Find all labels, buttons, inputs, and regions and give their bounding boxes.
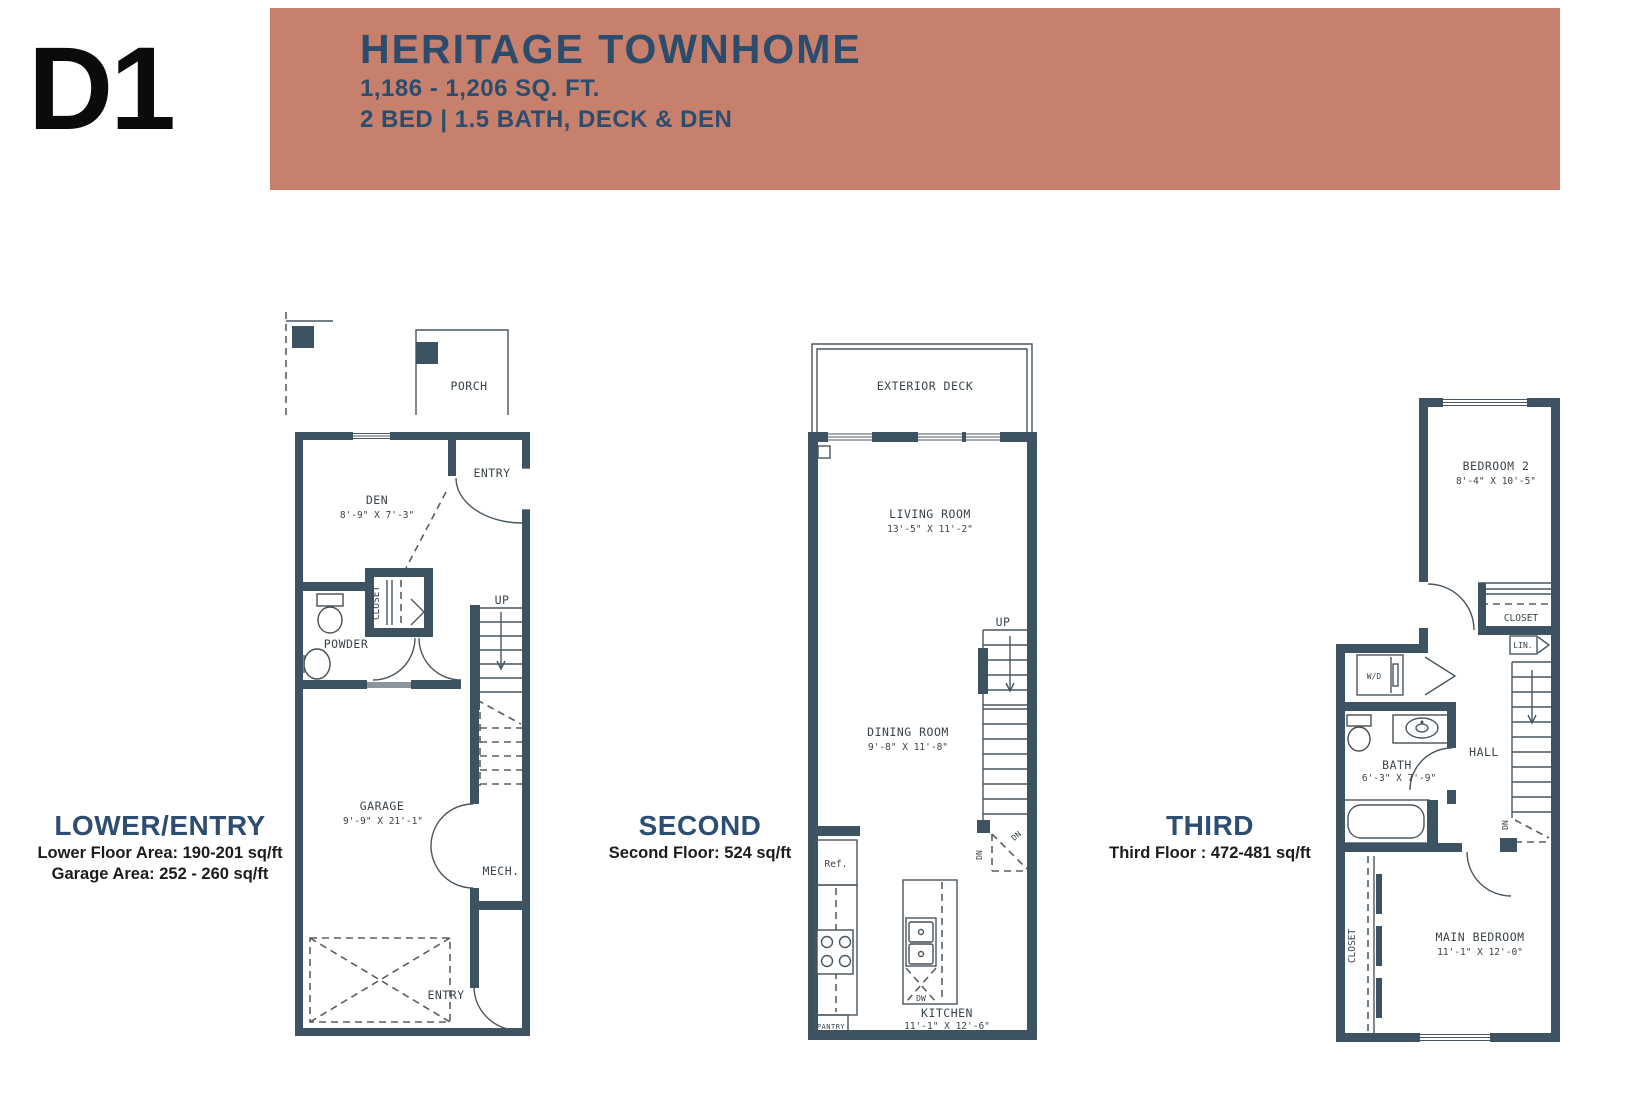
main-bedroom-dim: 11'-1" X 12'-0" xyxy=(1437,947,1523,958)
wall xyxy=(1427,800,1438,843)
stairs-up xyxy=(480,608,522,692)
lower-garage-area: Garage Area: 252 - 260 sq/ft xyxy=(15,865,305,884)
den-label: DEN xyxy=(366,493,388,507)
wall xyxy=(365,568,433,577)
column xyxy=(818,446,830,458)
stairs xyxy=(1512,662,1551,818)
door-arc xyxy=(456,478,522,523)
wall xyxy=(295,432,303,1036)
pantry-label: PANTRY xyxy=(817,1023,846,1031)
door-arc xyxy=(419,638,461,680)
dishwasher-label: DW xyxy=(916,994,926,1003)
toilet-icon xyxy=(1347,715,1371,726)
door-arc xyxy=(1428,584,1474,630)
plan-configuration: 2 BED | 1.5 BATH, DECK & DEN xyxy=(360,104,862,135)
floorplan-third: BEDROOM 2 8'-4" X 10'-5" CLOSET LIN. W/D xyxy=(1275,378,1567,1050)
den-dim: 8'-9" X 7'-3" xyxy=(340,510,414,521)
wall xyxy=(1478,626,1560,635)
door-arc xyxy=(431,846,473,888)
window xyxy=(1420,1033,1490,1042)
dining-room-dim: 9'-8" X 11'-8" xyxy=(868,742,948,753)
dn-label: DN xyxy=(1010,829,1023,842)
bath-label: BATH xyxy=(1382,758,1412,772)
stairs xyxy=(977,630,1027,833)
floorplan-second: EXTERIOR DECK LIVING ROOM 13'-5" X 11'-2… xyxy=(770,318,1040,1048)
garage-label: GARAGE xyxy=(360,799,405,813)
living-room-dim: 13'-5" X 11'-2" xyxy=(887,524,973,535)
plan-code: D1 xyxy=(28,30,173,148)
wall xyxy=(1336,843,1462,852)
wall xyxy=(1336,702,1455,711)
parking-stall-x xyxy=(310,938,450,1022)
wall-low xyxy=(367,682,411,688)
exterior-deck-label: EXTERIOR DECK xyxy=(877,379,974,393)
stairs-down-marker xyxy=(1515,820,1549,838)
main-bedroom-label: MAIN BEDROOM xyxy=(1435,930,1524,944)
door-arc xyxy=(431,804,473,846)
plan-title: HERITAGE TOWNHOME xyxy=(360,26,862,73)
wall xyxy=(1447,702,1456,748)
washer-dryer-label: W/D xyxy=(1367,672,1382,681)
wall xyxy=(1447,790,1456,804)
closet-upper-label: CLOSET xyxy=(1504,613,1539,624)
floorplan-lower: PORCH ENTRY DEN 8'-9" X 7'-3" CLOSET xyxy=(283,312,533,1042)
floorplan-sheet: D1 HERITAGE TOWNHOME 1,186 - 1,206 SQ. F… xyxy=(0,0,1644,1098)
bifold-door xyxy=(411,599,424,625)
sink-icon xyxy=(909,944,933,964)
kitchen-dim: 11'-1" X 12'-6" xyxy=(904,1021,990,1032)
entry-lower-label: ENTRY xyxy=(427,988,464,1002)
mech-label: MECH. xyxy=(482,864,519,878)
garage-dim: 9'-9" X 21'-1" xyxy=(343,816,423,827)
closet-upper: CLOSET xyxy=(1478,583,1556,628)
closet-lower: CLOSET xyxy=(1347,856,1382,1036)
lower-floor-area: Lower Floor Area: 190-201 sq/ft xyxy=(15,844,305,863)
wall xyxy=(424,568,433,636)
wall xyxy=(448,432,456,476)
wall xyxy=(365,628,433,637)
plan-size-range: 1,186 - 1,206 SQ. FT. xyxy=(360,73,862,104)
wall xyxy=(295,582,367,591)
closet-label: CLOSET xyxy=(371,586,382,621)
bifold-door xyxy=(1538,637,1549,653)
toilet-icon xyxy=(317,594,343,606)
stairs-below-grade xyxy=(477,700,522,786)
wall xyxy=(470,680,479,804)
wall xyxy=(522,432,530,1036)
closet-lower-label: CLOSET xyxy=(1347,929,1358,964)
stove-icon xyxy=(817,930,853,974)
toilet-icon xyxy=(318,607,342,633)
dn-label: DN xyxy=(1501,820,1510,830)
wall xyxy=(1027,432,1037,1040)
living-room-label: LIVING ROOM xyxy=(889,507,971,521)
stairs-down-marker: DN DN xyxy=(975,829,1027,871)
sink-icon xyxy=(304,649,330,679)
wall xyxy=(1336,644,1427,653)
door-arc xyxy=(373,638,415,680)
sink-icon xyxy=(909,922,933,942)
header-banner: HERITAGE TOWNHOME 1,186 - 1,206 SQ. FT. … xyxy=(270,8,1560,190)
lower-floor-name: LOWER/ENTRY xyxy=(15,810,305,842)
washer-dryer: W/D xyxy=(1357,655,1403,695)
wall xyxy=(295,432,530,440)
lower-floor-label-group: LOWER/ENTRY Lower Floor Area: 190-201 sq… xyxy=(15,810,305,884)
wall xyxy=(1551,398,1560,1042)
hall-label: HALL xyxy=(1469,745,1499,759)
window xyxy=(1443,398,1527,407)
bathtub-icon xyxy=(1343,800,1429,843)
bath-dim: 6'-3" X 7'-9" xyxy=(1362,773,1436,784)
dn-label: DN xyxy=(975,850,984,860)
porch-label: PORCH xyxy=(450,379,487,393)
wall xyxy=(295,680,367,689)
porch-post xyxy=(416,342,438,364)
bedroom2-label: BEDROOM 2 xyxy=(1463,459,1530,473)
bifold-door xyxy=(1425,657,1455,695)
wall xyxy=(1500,838,1517,852)
wall xyxy=(470,901,530,910)
linen-label: LIN. xyxy=(1513,641,1532,650)
entry-upper-label: ENTRY xyxy=(473,466,510,480)
vanity-sink-icon xyxy=(1393,715,1451,743)
door-opening xyxy=(522,468,530,510)
wall xyxy=(411,680,461,689)
header-text-block: HERITAGE TOWNHOME 1,186 - 1,206 SQ. FT. … xyxy=(360,26,862,135)
dining-room-label: DINING ROOM xyxy=(867,725,949,739)
bedroom2-dim: 8'-4" X 10'-5" xyxy=(1456,476,1536,487)
fridge-label: Ref. xyxy=(825,859,848,870)
door-arc xyxy=(1467,852,1511,896)
wall xyxy=(808,826,860,836)
powder-label: POWDER xyxy=(324,637,369,651)
kitchen-label: KITCHEN xyxy=(921,1006,973,1020)
ceiling-break-line xyxy=(406,492,446,568)
door-arc xyxy=(474,988,517,1030)
wall xyxy=(295,1028,530,1036)
wall xyxy=(1419,398,1428,582)
up-label: UP xyxy=(495,593,510,607)
porch-post xyxy=(292,326,314,348)
up-label: UP xyxy=(996,615,1011,629)
kitchen-island: DW xyxy=(903,880,957,1004)
toilet-icon xyxy=(1348,727,1370,751)
